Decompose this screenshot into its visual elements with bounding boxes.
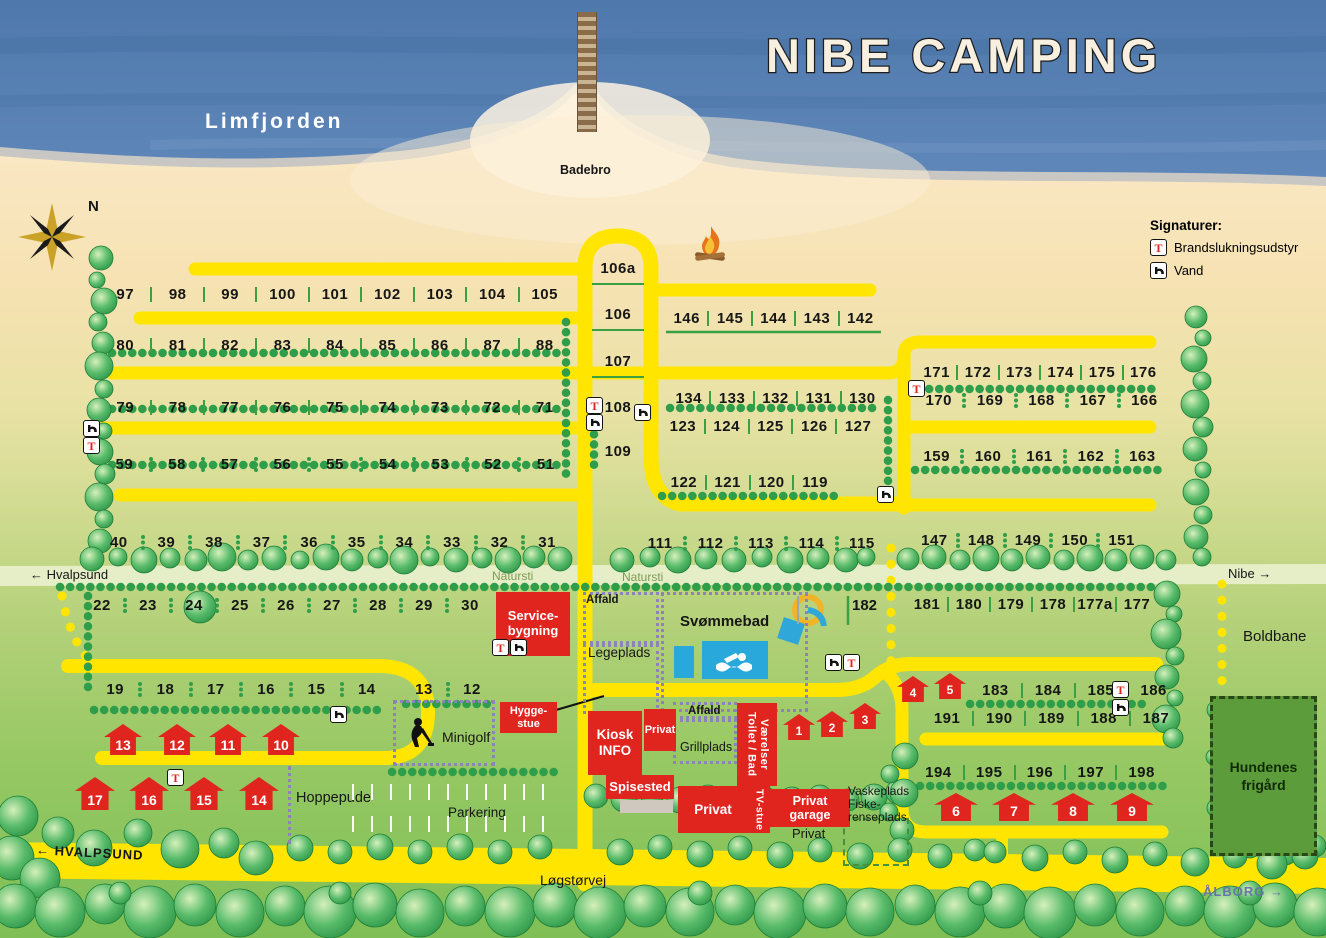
plot-number: 167 [1065, 393, 1116, 408]
fire-extinguisher-icon: T [586, 397, 603, 414]
plot-row-147-151: 147148149150151 [913, 527, 1143, 553]
natursti-label-east: Natursti [622, 570, 663, 584]
arrow-right: → [1270, 884, 1284, 899]
plot-number: 122 [663, 475, 705, 490]
legend-item-fire: T Brandslukningsudstyr [1150, 239, 1326, 256]
plot-row-134-130: 134133132131130 [668, 386, 883, 410]
plot-number: 72 [465, 400, 517, 415]
plot-row-79-71: 797877767574737271 [100, 394, 570, 420]
plot-number: 25 [215, 598, 261, 613]
plot-number: 180 [947, 597, 989, 612]
fire-extinguisher-icon: T [492, 639, 509, 656]
plot-number: 176 [1122, 365, 1163, 380]
swimming-pool [702, 641, 768, 679]
plot-number: 101 [308, 287, 360, 302]
plot-number: 160 [960, 449, 1011, 464]
plot-number: 84 [308, 338, 360, 353]
plot-number: 187 [1129, 711, 1181, 726]
plot-number: 88 [518, 338, 570, 353]
plot-number: 86 [413, 338, 465, 353]
plot-number: 87 [465, 338, 517, 353]
plot-row-40-31: 40393837363534333231 [97, 528, 569, 556]
plot-number: 17 [189, 682, 239, 697]
plot-number: 133 [709, 391, 752, 406]
small-pool [674, 646, 694, 678]
plot-number: 83 [255, 338, 307, 353]
plot-number: 73 [413, 400, 465, 415]
plot-number: 145 [707, 311, 750, 326]
legend-item-label: Brandslukningsudstyr [1174, 240, 1298, 255]
water-tap-icon [83, 420, 100, 437]
fire-extinguisher-icon: T [908, 380, 925, 397]
plot-row-111-115: 111112113114115 [637, 530, 885, 556]
plot-number: 99 [203, 287, 255, 302]
plot-number: 56 [254, 457, 307, 472]
campground-map: { "title": "NIBE CAMPING", "water": { "n… [0, 0, 1326, 938]
plot-number: 177a [1073, 597, 1115, 612]
plot-number: 131 [796, 391, 839, 406]
plot-number: 183 [970, 683, 1021, 698]
water-tap-icon [1150, 262, 1167, 279]
logstorvej-road-label: Løgstørvej [540, 872, 606, 888]
plot-number: 15 [289, 682, 339, 697]
plot-number: 119 [792, 475, 836, 490]
plot-row-123-127: 123124125126127 [662, 414, 879, 438]
plot-number: 81 [150, 338, 202, 353]
plot-number: 147 [913, 533, 956, 548]
plot-number: 125 [748, 419, 792, 434]
plot-number: 78 [150, 400, 202, 415]
legend-title: Signaturer: [1150, 218, 1326, 233]
plot-number: 97 [100, 287, 150, 302]
plot-number: 35 [331, 535, 379, 550]
plot-number: 171 [917, 365, 956, 380]
water-tap-icon [1112, 699, 1129, 716]
plot-number: 181 [907, 597, 947, 612]
vaskeplads-area-border [843, 818, 909, 866]
plot-row-19-14: 191817161514 [92, 676, 390, 702]
plot-number: 106 [592, 300, 644, 331]
plot-number: 54 [359, 457, 412, 472]
arrow-left: ← [30, 567, 43, 582]
plot-number: 195 [963, 765, 1014, 780]
plot-number: 76 [255, 400, 307, 415]
plot-number: 127 [835, 419, 879, 434]
plot-number: 197 [1064, 765, 1115, 780]
plot-number: 172 [956, 365, 997, 380]
plot-number: 175 [1080, 365, 1121, 380]
plot-row-194-198: 194195196197198 [914, 760, 1166, 784]
plot-row-146-142: 146145144143142 [666, 306, 881, 330]
plot-number: 106a [592, 254, 644, 285]
fire-extinguisher-icon: T [1150, 239, 1167, 256]
plot-number: 151 [1096, 533, 1143, 548]
plot-number: 29 [399, 598, 445, 613]
plot-number: 169 [962, 393, 1013, 408]
plot-number: 121 [705, 475, 749, 490]
fire-extinguisher-icon: T [83, 437, 100, 454]
plot-row-181-177: 181180179178177a177 [907, 592, 1157, 616]
plot-number: 126 [791, 419, 835, 434]
plot-row-191-187: 191190189188187 [922, 706, 1181, 730]
plot-number: 132 [753, 391, 796, 406]
plot-number: 194 [914, 765, 963, 780]
legend: Signaturer: T Brandslukningsudstyr Vand [1150, 218, 1326, 285]
plot-number-182: 182 [852, 597, 877, 614]
plot-number: 58 [149, 457, 202, 472]
badebro-label: Badebro [560, 163, 611, 177]
plot-number: 26 [261, 598, 307, 613]
plot-number: 174 [1039, 365, 1080, 380]
plot-number: 98 [150, 287, 202, 302]
privat-garage-building: Privatgarage [770, 789, 850, 827]
plot-number: 51 [517, 457, 570, 472]
plot-number: 146 [666, 311, 707, 326]
plot-row-59-51: 595857565554535251 [100, 450, 570, 478]
water-tap-icon [586, 414, 603, 431]
plot-number: 30 [445, 598, 491, 613]
parking-stripes [335, 784, 560, 800]
affald-top-label: Affald [586, 594, 619, 606]
plot-number: 36 [283, 535, 331, 550]
plot-number: 186 [1126, 683, 1179, 698]
plot-number: 32 [474, 535, 522, 550]
toilet-bad-building: Toilet / Bad Værelser [737, 703, 777, 786]
plot-number: 198 [1115, 765, 1166, 780]
spisested-building: Spisested [606, 775, 674, 799]
plot-number: 27 [307, 598, 353, 613]
plot-number: 107 [592, 347, 644, 378]
hygge-stue-building: Hygge-stue [500, 702, 557, 733]
plot-number: 24 [169, 598, 215, 613]
plot-number: 177 [1115, 597, 1157, 612]
plot-number: 23 [123, 598, 169, 613]
plot-number: 39 [141, 535, 189, 550]
swimmer-icon [702, 641, 768, 679]
plot-row-80-88: 808182838485868788 [100, 333, 570, 357]
plot-number: 148 [956, 533, 1003, 548]
plot-number: 191 [922, 711, 972, 726]
plot-number: 75 [308, 400, 360, 415]
plot-number: 150 [1049, 533, 1096, 548]
fire-extinguisher-icon: T [843, 654, 860, 671]
plot-number: 38 [188, 535, 236, 550]
plot-number: 113 [734, 536, 784, 551]
plot-number: 31 [521, 535, 569, 550]
badebro-pier-icon [577, 12, 597, 132]
plot-number: 55 [307, 457, 360, 472]
plot-number: 166 [1117, 393, 1168, 408]
plot-number: 16 [239, 682, 289, 697]
plot-number: 19 [92, 682, 138, 697]
plot-number: 77 [203, 400, 255, 415]
plot-number: 196 [1014, 765, 1065, 780]
dog-yard-label: frigård [1241, 776, 1285, 794]
plot-number: 115 [835, 536, 885, 551]
hvalpsund-path-label: ← Hvalpsund [30, 567, 108, 582]
plot-number: 82 [203, 338, 255, 353]
plot-row-159-163: 159160161162163 [913, 444, 1166, 468]
plot-number: 184 [1021, 683, 1074, 698]
plot-number: 130 [840, 391, 883, 406]
plot-number: 112 [683, 536, 733, 551]
plot-number: 14 [340, 682, 390, 697]
water-tap-icon [877, 486, 894, 503]
plot-number: 102 [360, 287, 412, 302]
plot-number: 178 [1031, 597, 1073, 612]
legend-item-label: Vand [1174, 263, 1203, 278]
boldbane-label: Boldbane [1243, 628, 1306, 645]
legeplads-label: Legeplads [588, 645, 650, 660]
privat-large-building: Privat [678, 786, 748, 833]
plot-number: 179 [989, 597, 1031, 612]
plot-number: 162 [1063, 449, 1114, 464]
plot-number: 79 [100, 400, 150, 415]
legend-item-water: Vand [1150, 262, 1326, 279]
plot-number: 103 [413, 287, 465, 302]
plot-number: 104 [465, 287, 517, 302]
plot-number: 173 [998, 365, 1039, 380]
water-tap-icon [330, 706, 347, 723]
plot-number: 109 [592, 437, 644, 466]
affald-mid-label: Affald [688, 705, 721, 717]
svommebad-label: Svømmebad [680, 613, 769, 630]
tv-stue-building: TV-stue [748, 786, 770, 833]
plot-number: 18 [138, 682, 188, 697]
natursti-label-west: Natursti [492, 569, 533, 583]
plot-number: 33 [426, 535, 474, 550]
plot-number: 189 [1024, 711, 1076, 726]
fire-extinguisher-icon: T [1112, 681, 1129, 698]
plot-row-122-119: 122121120119 [663, 470, 836, 494]
fire-extinguisher-icon: T [167, 769, 184, 786]
plot-number: 85 [360, 338, 412, 353]
plot-row-170-166: 170169168167166 [915, 388, 1168, 412]
water-name-label: Limfjorden [205, 110, 344, 134]
plot-number: 80 [100, 338, 150, 353]
plot-number: 143 [794, 311, 837, 326]
plot-row-171-176: 171172173174175176 [917, 360, 1163, 384]
plot-number: 190 [972, 711, 1024, 726]
parking-stripes [335, 816, 560, 832]
plot-number: 37 [236, 535, 284, 550]
arrow-left: ← [36, 842, 51, 858]
plot-number: 28 [353, 598, 399, 613]
plot-number: 142 [838, 311, 881, 326]
plot-number: 100 [255, 287, 307, 302]
kiosk-info-building: KioskINFO [588, 711, 642, 775]
plot-number: 168 [1014, 393, 1065, 408]
compass-north-label: N [88, 198, 99, 215]
plot-number: 12 [446, 682, 494, 697]
plot-number: 161 [1012, 449, 1063, 464]
plot-number: 57 [201, 457, 254, 472]
arrow-right: → [1258, 566, 1271, 581]
plot-number: 53 [412, 457, 465, 472]
plot-number: 144 [751, 311, 794, 326]
plot-number: 120 [749, 475, 793, 490]
water-tap-icon [634, 404, 651, 421]
dog-yard-label: Hundenes [1230, 758, 1298, 776]
map-title: NIBE CAMPING [766, 28, 1161, 83]
plot-row-183-186: 183184185186 [970, 678, 1179, 702]
plot-column-106a-109: 106a106107108109 [592, 254, 644, 466]
plot-number: 124 [704, 419, 748, 434]
plot-number: 22 [81, 598, 123, 613]
nibe-direction-label: Nibe → [1228, 566, 1271, 581]
plot-row-13-12: 1312 [402, 678, 494, 700]
aalborg-direction-label: ÅLBORG → [1203, 884, 1284, 899]
privat-small-building: Privat [644, 709, 676, 751]
plot-number: 13 [402, 682, 446, 697]
plot-number: 74 [360, 400, 412, 415]
plot-number: 134 [668, 391, 709, 406]
plot-number: 114 [784, 536, 834, 551]
plot-number: 71 [518, 400, 570, 415]
water-tap-icon [510, 639, 527, 656]
plot-number: 163 [1115, 449, 1166, 464]
plot-number: 111 [637, 536, 683, 551]
plot-number: 40 [97, 535, 141, 550]
vaskeplads-label: VaskepladsFiske-renseplads [848, 785, 909, 825]
plot-number: 149 [1003, 533, 1050, 548]
privat-ground-label: Privat [792, 826, 825, 841]
plot-number: 52 [465, 457, 518, 472]
plot-row-22-30: 222324252627282930 [81, 592, 491, 618]
plot-number: 159 [913, 449, 960, 464]
plot-row-97-105: 979899100101102103104105 [100, 282, 570, 306]
spisested-terrace [620, 800, 673, 813]
water-tap-icon [825, 654, 842, 671]
minigolf-label: Minigolf [442, 729, 490, 745]
dog-yard: Hundenes frigård [1210, 696, 1317, 856]
plot-number: 105 [518, 287, 570, 302]
hoppepude-divider [288, 766, 291, 844]
plot-number: 34 [379, 535, 427, 550]
plot-number: 123 [662, 419, 704, 434]
plot-number: 59 [100, 457, 149, 472]
grillplads-label: Grillplads [680, 740, 732, 754]
